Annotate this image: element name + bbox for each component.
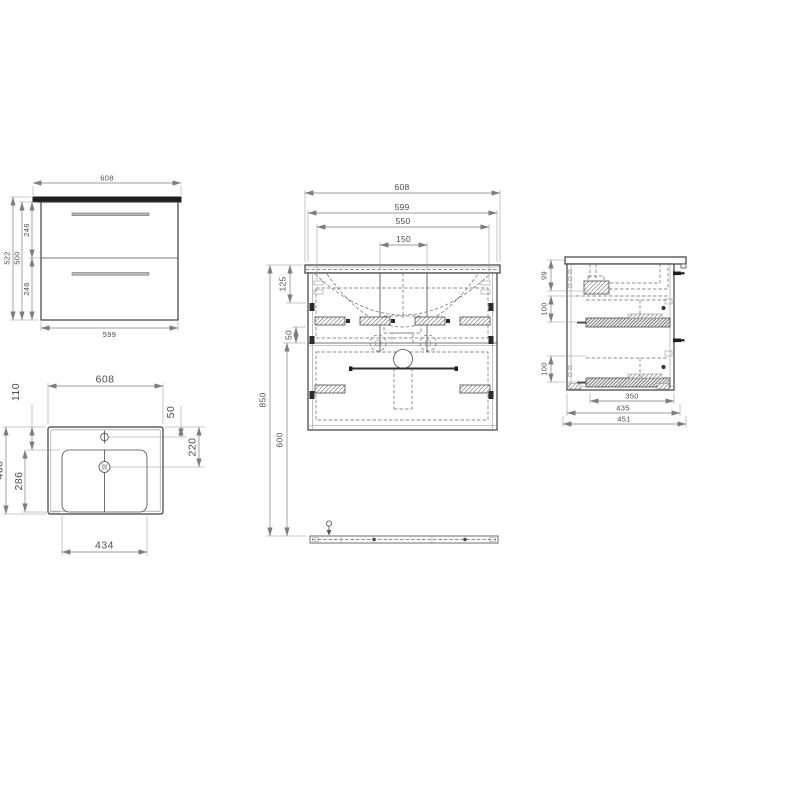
countertop-side bbox=[565, 257, 686, 264]
dim-plan-rim-to-bowl: 110 bbox=[10, 383, 22, 401]
dim-section-slide-offset: 50 bbox=[284, 330, 294, 340]
dim-section-carcass-width: 599 bbox=[394, 202, 409, 212]
dim-side-overall-depth: 451 bbox=[617, 415, 630, 424]
side-section-view: 99 100 100 350 435 451 bbox=[540, 257, 687, 427]
dim-front-bottom-width: 599 bbox=[103, 330, 116, 339]
dim-plan-depth: 460 bbox=[0, 460, 6, 479]
cabinet-front-view: 608 599 522 500 246 246 bbox=[3, 174, 182, 340]
lower-drawer-handle bbox=[72, 273, 149, 276]
dim-section-wall-height: 850 bbox=[258, 392, 268, 407]
dim-plan-width: 608 bbox=[95, 374, 114, 386]
dim-section-top-width: 608 bbox=[394, 182, 409, 192]
wall-mounting-rail bbox=[310, 536, 498, 543]
screw-icon bbox=[326, 521, 331, 536]
upper-drawer-handle bbox=[72, 213, 149, 216]
dim-front-carcass-height: 500 bbox=[13, 251, 22, 264]
drain-icon bbox=[99, 462, 110, 473]
dim-front-lower-drawer: 246 bbox=[22, 282, 31, 295]
front-section-view: 608 599 550 150 850 600 125 50 bbox=[258, 182, 501, 543]
dim-side-carcass-depth: 435 bbox=[616, 404, 629, 413]
dim-plan-faucet-offset: 50 bbox=[165, 406, 177, 419]
dim-section-drain-span: 150 bbox=[396, 234, 411, 244]
cabinet-body bbox=[41, 202, 178, 320]
dim-side-drawer-depth: 350 bbox=[625, 392, 638, 401]
dim-section-top-offset: 125 bbox=[278, 276, 288, 291]
dim-front-upper-drawer: 246 bbox=[22, 223, 31, 236]
dim-side-basin-depth: 99 bbox=[540, 271, 549, 280]
dim-side-upper-slide-drop: 100 bbox=[540, 302, 549, 315]
dim-section-hanger-span: 550 bbox=[395, 216, 410, 226]
dim-plan-drain-offset: 220 bbox=[187, 437, 199, 456]
dim-front-top-width: 608 bbox=[100, 174, 113, 183]
technical-drawing: 608 599 522 500 246 246 bbox=[0, 0, 800, 800]
dim-section-rail-drop: 600 bbox=[275, 432, 285, 447]
dim-plan-bowl-width: 434 bbox=[95, 540, 114, 552]
basin-plan-view: 608 110 460 286 50 220 434 bbox=[0, 374, 205, 557]
countertop-section bbox=[305, 265, 500, 273]
dim-side-lower-slide-drop: 100 bbox=[540, 362, 549, 375]
dim-plan-bowl-depth: 286 bbox=[13, 471, 25, 490]
drawing-canvas: 608 599 522 500 246 246 bbox=[0, 0, 800, 800]
countertop-front bbox=[33, 197, 181, 202]
dim-front-overall-height: 522 bbox=[3, 251, 12, 264]
